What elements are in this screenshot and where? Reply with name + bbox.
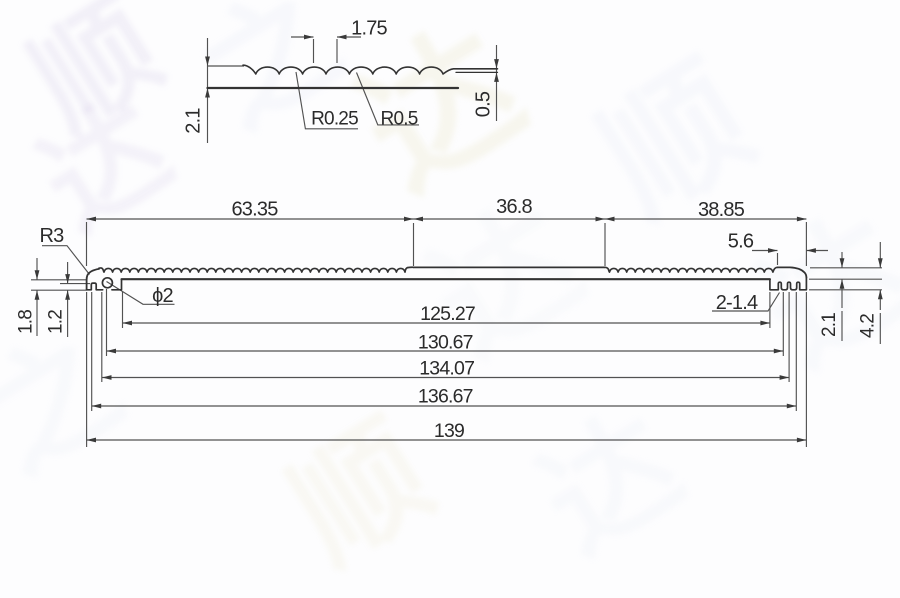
svg-text:4.2: 4.2 [858, 314, 879, 338]
svg-text:5.6: 5.6 [728, 231, 754, 253]
svg-text:R0.25: R0.25 [311, 109, 358, 130]
svg-text:R3: R3 [40, 225, 65, 247]
svg-text:38.85: 38.85 [698, 199, 745, 221]
svg-text:0.5: 0.5 [472, 91, 494, 117]
svg-text:134.07: 134.07 [419, 358, 474, 380]
svg-text:1.8: 1.8 [16, 310, 37, 334]
svg-text:2.1: 2.1 [182, 108, 204, 134]
svg-text:136.67: 136.67 [418, 386, 473, 408]
svg-text:139: 139 [434, 420, 464, 442]
svg-text:ϕ2: ϕ2 [152, 285, 173, 307]
svg-text:2-1.4: 2-1.4 [716, 292, 758, 314]
svg-text:125.27: 125.27 [420, 303, 475, 325]
svg-text:36.8: 36.8 [496, 196, 532, 218]
svg-text:2.1: 2.1 [819, 313, 840, 337]
svg-text:130.67: 130.67 [418, 332, 473, 354]
svg-text:1.75: 1.75 [351, 18, 387, 40]
svg-text:R0.5: R0.5 [381, 109, 418, 130]
svg-text:1.2: 1.2 [46, 310, 67, 334]
svg-text:63.35: 63.35 [231, 198, 278, 220]
